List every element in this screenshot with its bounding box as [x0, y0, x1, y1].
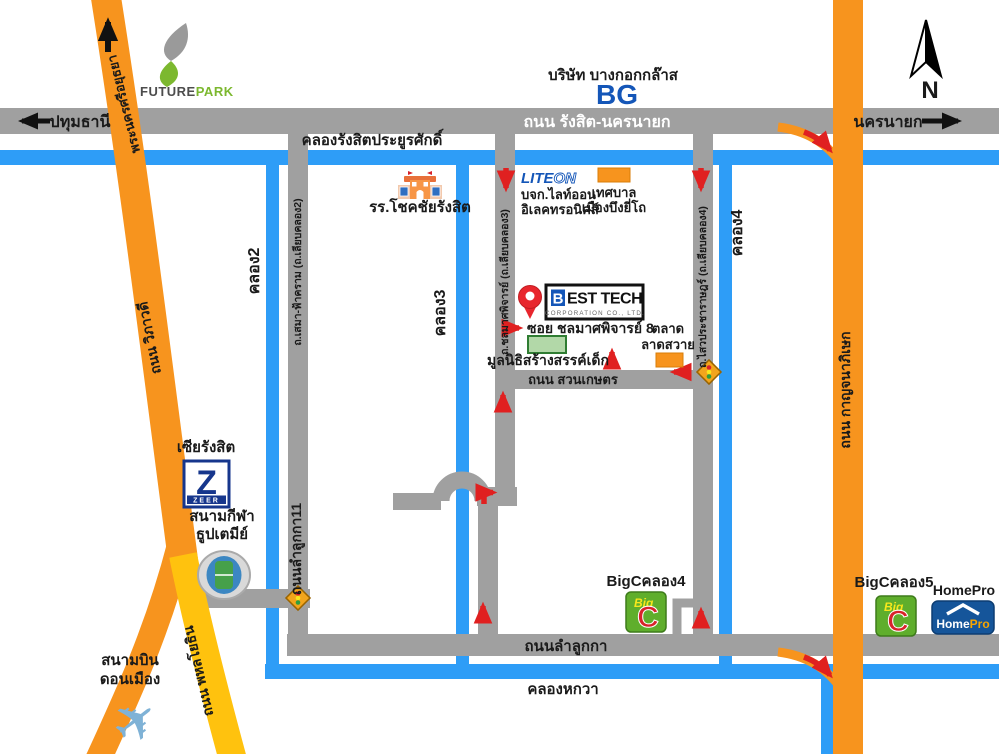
- traffic-light-yellow: [296, 596, 301, 601]
- traffic-light-green: [296, 600, 301, 605]
- label-kanchanaphisek: ถนน กาญจนาภิเษก: [837, 331, 854, 448]
- liteon-logo: LITEON: [521, 170, 577, 187]
- pin-hole: [526, 292, 535, 301]
- airport-label-2: ดอนเมือง: [100, 671, 160, 688]
- road-bigc-loop: [677, 603, 693, 634]
- school-flag: [427, 171, 432, 175]
- label-road-chonlamat: ถ.ชลมาศพิจารย์ (ถ.เลียบคลอง3): [498, 209, 511, 355]
- label-canal-hokwa: คลองหกวา: [527, 681, 598, 698]
- zeer-label: เซียรังสิต: [177, 438, 235, 456]
- zeer-logo: Z ZEER: [184, 461, 229, 507]
- canal-hokwa: [265, 664, 999, 679]
- school-wing-window: [432, 187, 440, 196]
- label-lamlukka11: ถนนลำลูกกา11: [288, 503, 305, 595]
- stadium-label-2: ธูปเตมีย์: [196, 525, 248, 544]
- school-wing-window: [400, 187, 408, 196]
- school-icon: [398, 171, 442, 199]
- arrow-ramp-north: [804, 132, 830, 150]
- north-compass: N: [911, 20, 941, 104]
- foundation-icon: [528, 336, 566, 353]
- homepro-wordmark: HomePro: [936, 617, 989, 631]
- school-door: [417, 190, 424, 199]
- zeer-wordmark: ZEER: [193, 498, 220, 505]
- compass-needle-east: [926, 20, 941, 76]
- foundation-label: มูลนิธิสร้างสรรค์เด็ก: [487, 351, 609, 369]
- school-window: [424, 182, 429, 187]
- bigc-logo: Big C: [626, 592, 666, 634]
- bigc-c: C: [887, 605, 909, 638]
- label-canal-klong2: คลอง2: [246, 247, 263, 294]
- canal-klong3: [456, 150, 469, 664]
- traffic-light-green: [707, 374, 712, 379]
- market-label-1: ตลาด: [652, 321, 684, 336]
- market-label-2: ลาดสวาย: [641, 337, 695, 352]
- besttech-wordmark: EST TECH: [567, 291, 642, 308]
- canal-klong2: [266, 150, 279, 664]
- school-window: [412, 182, 417, 187]
- futurepark-logo: FUTUREPARK: [140, 23, 234, 99]
- bg-logo: BG: [596, 79, 638, 110]
- label-road-sawai: ถ.ไสวประชาราษฎร์ (ถ.เลียบคลอง4): [696, 206, 709, 368]
- label-nakhonnayok: นครนายก: [853, 114, 922, 131]
- label-pathumthani: ปทุมธานี: [50, 112, 111, 132]
- school-label: รร.โชคชัยรังสิต: [369, 197, 471, 216]
- label-canal-klong4: คลอง4: [729, 209, 746, 256]
- label-lamlukka: ถนนลำลูกกา: [525, 638, 608, 656]
- market-icon: [656, 353, 683, 367]
- label-road-sema: ถ.เสมา-ฟ้าคราม (ถ.เลียบคลอง2): [291, 198, 304, 345]
- stadium-icon: [198, 551, 250, 599]
- stadium-label-1: สนามกีฬา: [189, 508, 254, 525]
- compass-n-label: N: [921, 77, 938, 104]
- homepro-logo: HomePro: [932, 601, 994, 634]
- bigc-c: C: [637, 601, 659, 634]
- bigc4-label: BigCคลอง4: [607, 573, 687, 590]
- besttech-logo: B EST TECH CORPORATION CO., LTD.: [545, 285, 645, 319]
- label-suankaset: ถนน สวนเกษตร: [528, 372, 618, 387]
- futurepark-wordmark: FUTUREPARK: [140, 84, 234, 99]
- bigc-logo: Big C: [876, 596, 916, 638]
- municipality-label-2: เมืองบึงยี่โถ: [582, 198, 646, 215]
- label-canal-klong3: คลอง3: [432, 289, 449, 336]
- location-map: ถนน รังสิต-นครนายก ปทุมธานี นครนายก คลอง…: [0, 0, 999, 754]
- label-canal-rangsit: คลองรังสิตประยูรศักดิ์: [302, 128, 445, 150]
- besttech-pin-icon: [519, 286, 542, 320]
- futurepark-swoosh-gray: [164, 23, 188, 61]
- compass-needle-west: [911, 20, 926, 76]
- airport-label-1: สนามบิน: [101, 651, 159, 669]
- school-flag: [408, 171, 413, 175]
- besttech-b: B: [553, 291, 564, 308]
- municipality-label-1: เทศบาล: [592, 185, 637, 200]
- municipality-icon: [598, 168, 630, 182]
- bigc5-label: BigCคลอง5: [855, 574, 934, 591]
- map-stage: ถนน รังสิต-นครนายก ปทุมธานี นครนายก คลอง…: [0, 0, 999, 754]
- besttech-subtitle: CORPORATION CO., LTD.: [545, 310, 645, 317]
- label-soi8: ซอย ชลมาศพิจารย์ 8: [527, 320, 654, 336]
- traffic-light-yellow: [707, 370, 712, 375]
- label-road-rangsit: ถนน รังสิต-นครนายก: [523, 113, 670, 131]
- homepro-label: HomePro: [933, 582, 995, 598]
